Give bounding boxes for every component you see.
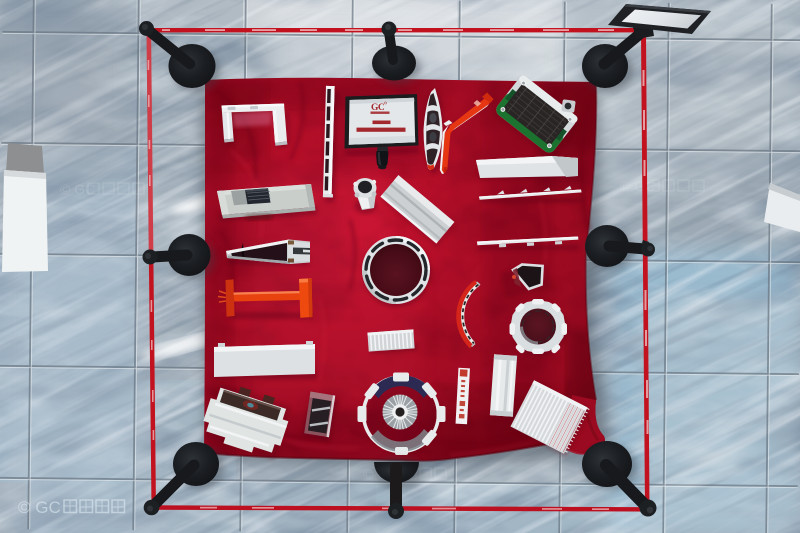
svg-text:© GC: © GC <box>620 178 655 194</box>
svg-text:© GC: © GC <box>18 498 61 517</box>
svg-text:© GC: © GC <box>60 181 95 197</box>
